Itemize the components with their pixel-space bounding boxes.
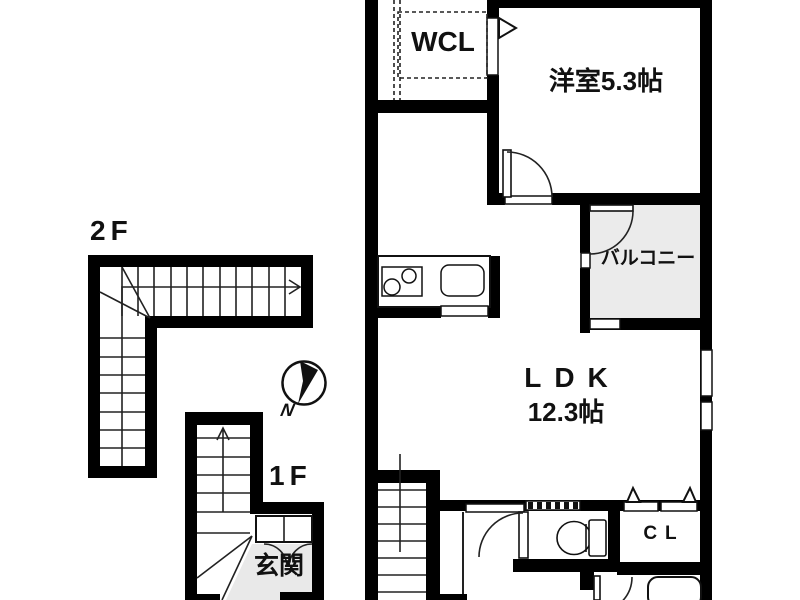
ldk-window-2 xyxy=(701,402,712,430)
kitchen-counter-face xyxy=(441,306,488,316)
western-room-door-leaf xyxy=(503,150,511,197)
toilet-door-arc xyxy=(479,513,523,557)
floor-label-2f: 2F xyxy=(90,217,133,245)
room-label-ldk: LDK xyxy=(460,364,672,392)
stove-burner-icon xyxy=(384,279,400,295)
balcony-bottom-window xyxy=(590,319,620,329)
kitchen-sink-icon xyxy=(441,265,484,296)
washbasin-icon xyxy=(648,577,701,600)
closet-door-panel-right xyxy=(661,502,697,511)
room-label-ldk-size: 12.3帖 xyxy=(460,399,672,425)
western-room-door-sill xyxy=(505,196,552,204)
western-room-door-arc xyxy=(507,152,552,197)
kitchen-counter-icon xyxy=(378,256,490,316)
closet-door-triangle-right xyxy=(683,488,696,502)
floor-label-1f: 1F xyxy=(269,462,312,490)
washroom-door-leaf xyxy=(594,576,600,600)
wcl-door-opening xyxy=(487,18,498,75)
stairs-unit-treads xyxy=(378,490,426,592)
stairs-1f-direction-arrow xyxy=(217,428,229,512)
stairs-2f-winders xyxy=(100,267,150,318)
staircase-2f xyxy=(100,267,300,466)
ldk-window-1 xyxy=(701,350,712,396)
toilet-door-leaf xyxy=(519,512,528,558)
floor-plan: 2F 1F WCL 洋室5.3帖 バルコニー LDK 12.3帖 CL 玄関 N xyxy=(0,0,800,600)
balcony-door-leaf xyxy=(590,205,633,211)
room-label-entrance: 玄関 xyxy=(247,554,311,579)
washroom-door-arc xyxy=(597,577,632,600)
compass-icon xyxy=(283,361,326,405)
overhead-dashed-strip xyxy=(526,501,580,510)
compass-needle xyxy=(298,361,318,404)
stove-burner-icon xyxy=(402,269,416,283)
room-label-closet: CL xyxy=(618,524,702,543)
toilet-icon xyxy=(557,520,606,556)
entrance-cabinet xyxy=(256,516,312,542)
room-label-wcl: WCL xyxy=(398,28,488,56)
wcl-door-flag xyxy=(499,18,516,38)
stairs-2f-treads-top xyxy=(122,267,285,316)
room-label-western-room: 洋室5.3帖 xyxy=(500,68,712,94)
toilet-tank xyxy=(589,520,606,556)
room-label-balcony: バルコニー xyxy=(592,249,704,268)
balcony-side-window xyxy=(581,253,590,268)
closet-door-triangle-left xyxy=(627,488,640,502)
closet-door-panel-left xyxy=(624,502,658,511)
sliding-door-leaf xyxy=(466,504,524,512)
